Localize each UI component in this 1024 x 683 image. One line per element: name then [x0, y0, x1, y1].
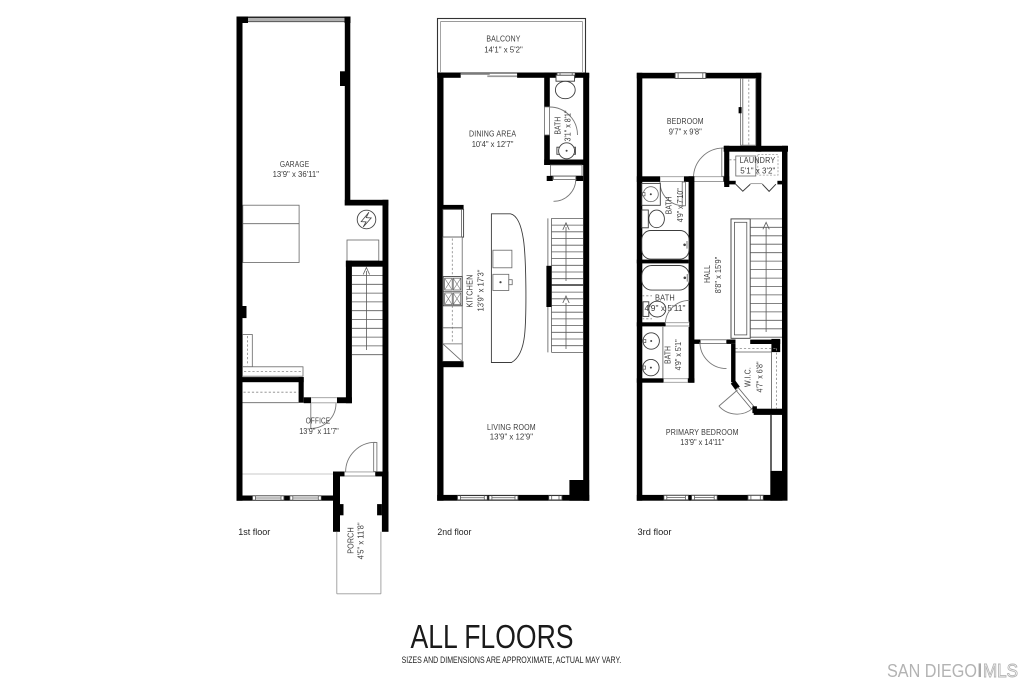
svg-text:KITCHEN: KITCHEN	[464, 275, 474, 308]
svg-text:MLS: MLS	[983, 660, 1018, 681]
svg-text:4'9" x 7'10": 4'9" x 7'10"	[676, 188, 685, 222]
svg-text:LAUNDRY: LAUNDRY	[740, 155, 776, 165]
svg-text:BATH: BATH	[663, 346, 673, 364]
svg-text:13'9" x 12'9": 13'9" x 12'9"	[490, 433, 533, 442]
svg-text:10'4" x 12'7": 10'4" x 12'7"	[472, 140, 514, 149]
svg-text:HALL: HALL	[702, 265, 712, 283]
svg-text:SIZES AND DIMENSIONS ARE APPRO: SIZES AND DIMENSIONS ARE APPROXIMATE, AC…	[402, 655, 622, 665]
svg-text:3'1" x 8'1": 3'1" x 8'1"	[564, 110, 573, 141]
svg-text:BALCONY: BALCONY	[486, 34, 520, 44]
svg-text:13'9" x 36'11": 13'9" x 36'11"	[273, 170, 320, 179]
svg-text:GARAGE: GARAGE	[280, 159, 310, 169]
svg-text:LIVING ROOM: LIVING ROOM	[487, 422, 536, 432]
svg-text:9'7" x 9'8": 9'7" x 9'8"	[669, 128, 702, 137]
svg-text:14'1" x 5'2": 14'1" x 5'2"	[484, 46, 523, 55]
svg-text:4'9" x 5'1": 4'9" x 5'1"	[674, 339, 683, 370]
svg-text:OFFICE: OFFICE	[306, 416, 331, 426]
svg-text:13'9" x 17'3": 13'9" x 17'3"	[477, 269, 486, 311]
svg-text:PRIMARY BEDROOM: PRIMARY BEDROOM	[666, 427, 739, 437]
svg-text:1st floor: 1st floor	[238, 527, 270, 537]
svg-text:PORCH: PORCH	[346, 527, 356, 554]
svg-text:BATH: BATH	[664, 196, 674, 214]
svg-text:SAN DIEGO: SAN DIEGO	[887, 660, 977, 681]
svg-text:3rd floor: 3rd floor	[638, 527, 672, 537]
svg-text:13'9" x 14'11": 13'9" x 14'11"	[680, 438, 724, 447]
svg-text:2nd floor: 2nd floor	[437, 527, 471, 537]
svg-text:BATH: BATH	[655, 292, 675, 302]
svg-text:13'9" x 11'7": 13'9" x 11'7"	[299, 427, 339, 436]
svg-text:4'5" x 11'8": 4'5" x 11'8"	[357, 522, 366, 559]
svg-text:8'8" x 15'9": 8'8" x 15'9"	[714, 257, 723, 294]
svg-text:4'9" x 5'11": 4'9" x 5'11"	[645, 304, 686, 313]
svg-text:BATH: BATH	[552, 117, 562, 135]
svg-text:ALL FLOORS: ALL FLOORS	[411, 619, 574, 656]
svg-text:DINING AREA: DINING AREA	[469, 128, 516, 138]
svg-text:BEDROOM: BEDROOM	[667, 116, 704, 126]
svg-text:4'7" x 6'8": 4'7" x 6'8"	[755, 361, 764, 392]
svg-text:W.I.C.: W.I.C.	[743, 367, 753, 387]
svg-text:5'1" x 3'2": 5'1" x 3'2"	[740, 167, 775, 176]
